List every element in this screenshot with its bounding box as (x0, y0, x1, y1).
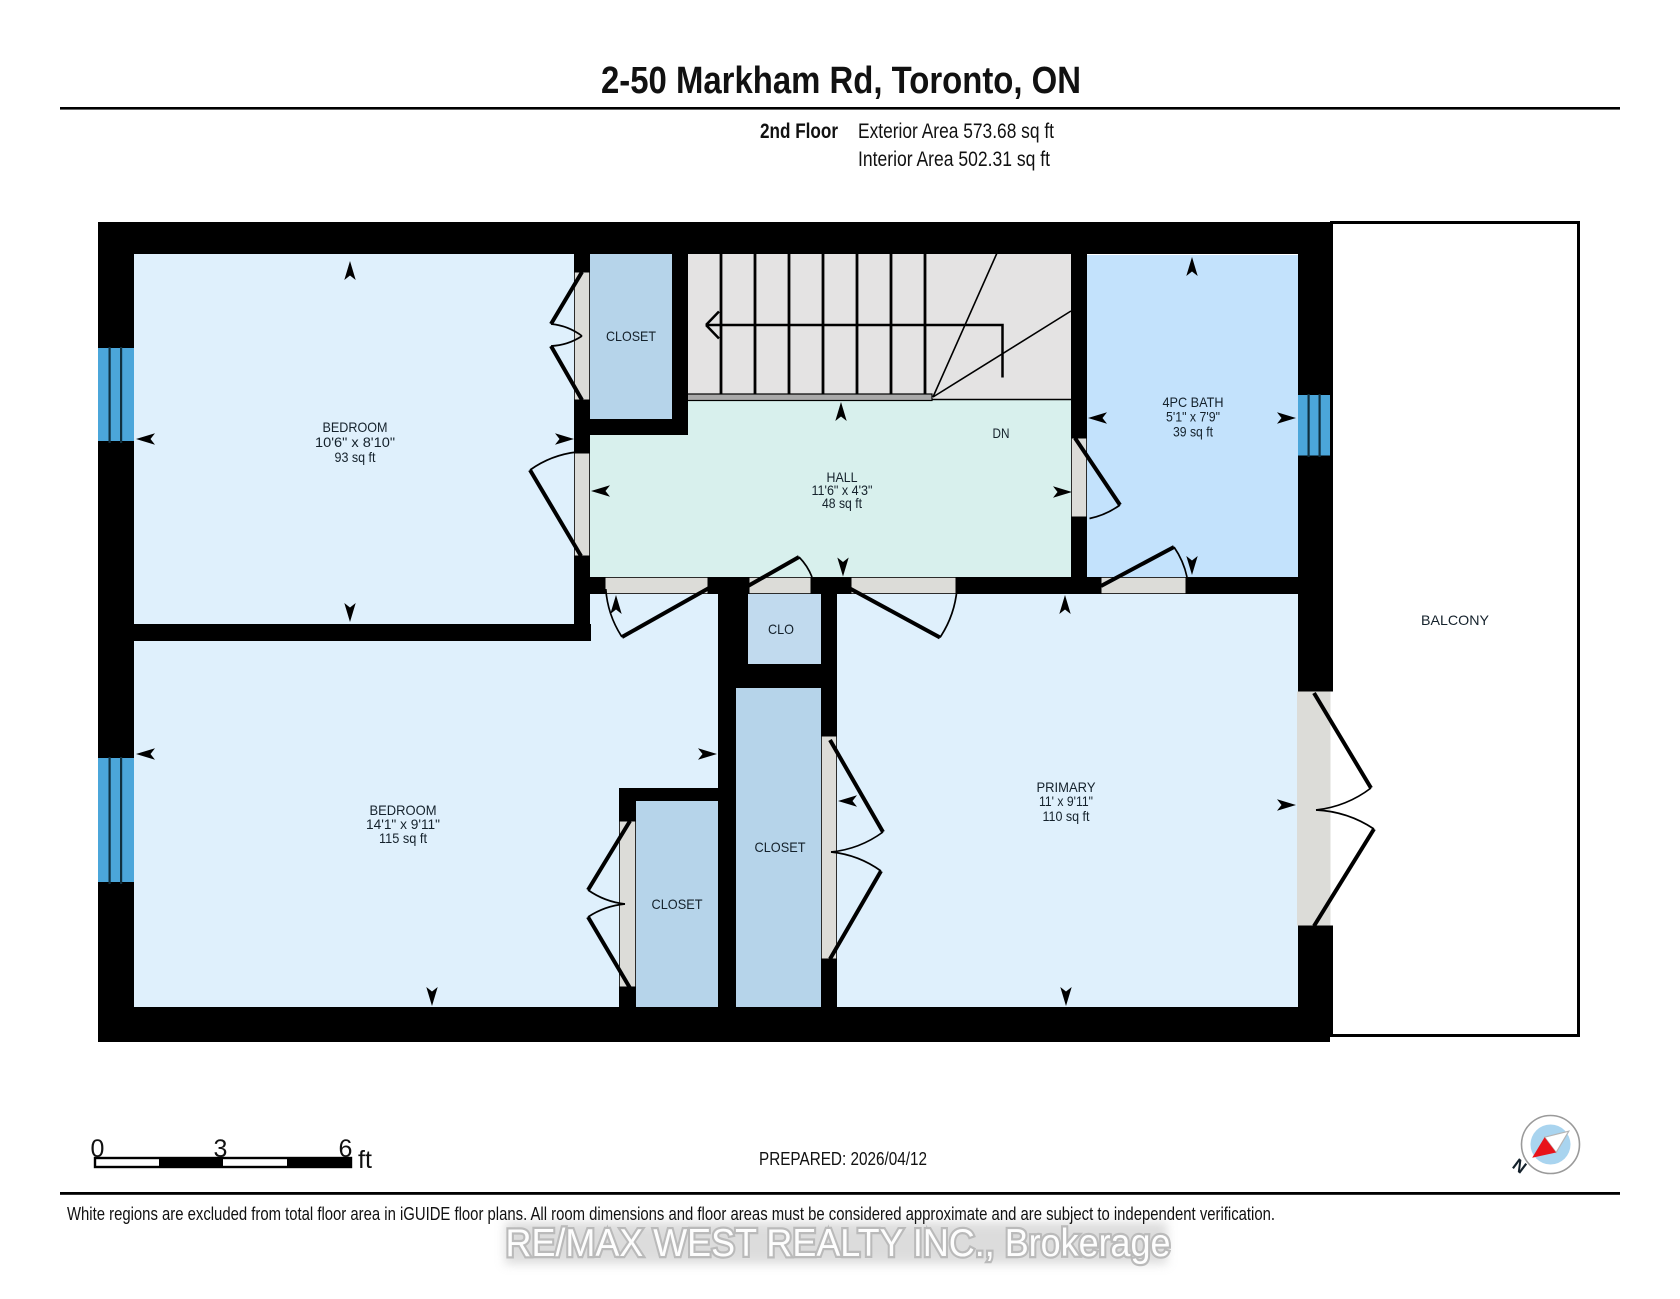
svg-text:CLOSET: CLOSET (652, 896, 703, 912)
svg-text:Exterior Area 573.68 sq ft: Exterior Area 573.68 sq ft (858, 120, 1054, 143)
svg-text:5'1" x 7'9": 5'1" x 7'9" (1166, 409, 1220, 425)
svg-text:CLOSET: CLOSET (755, 839, 806, 855)
svg-text:Interior Area 502.31 sq ft: Interior Area 502.31 sq ft (858, 148, 1050, 171)
svg-text:DN: DN (993, 425, 1010, 441)
svg-text:2-50 Markham Rd, Toronto, ON: 2-50 Markham Rd, Toronto, ON (601, 60, 1081, 102)
svg-text:BALCONY: BALCONY (1421, 612, 1490, 628)
svg-text:10'6" x 8'10": 10'6" x 8'10" (315, 434, 395, 450)
svg-text:ft: ft (358, 1146, 372, 1174)
svg-text:PREPARED: 2026/04/12: PREPARED: 2026/04/12 (759, 1148, 927, 1169)
svg-text:CLO: CLO (768, 621, 794, 637)
svg-text:110 sq ft: 110 sq ft (1043, 808, 1090, 824)
svg-text:BEDROOM: BEDROOM (323, 419, 388, 435)
svg-text:11' x 9'11": 11' x 9'11" (1039, 793, 1093, 809)
svg-text:115 sq ft: 115 sq ft (379, 830, 427, 846)
svg-text:White regions are excluded fro: White regions are excluded from total fl… (67, 1203, 1275, 1224)
svg-text:2nd Floor: 2nd Floor (760, 120, 838, 143)
svg-text:39 sq ft: 39 sq ft (1173, 424, 1213, 440)
svg-text:48 sq ft: 48 sq ft (822, 495, 862, 511)
svg-text:93 sq ft: 93 sq ft (335, 449, 376, 465)
svg-text:CLOSET: CLOSET (606, 328, 656, 344)
svg-text:RE/MAX WEST REALTY INC., Broke: RE/MAX WEST REALTY INC., Brokerage (506, 1222, 1171, 1265)
